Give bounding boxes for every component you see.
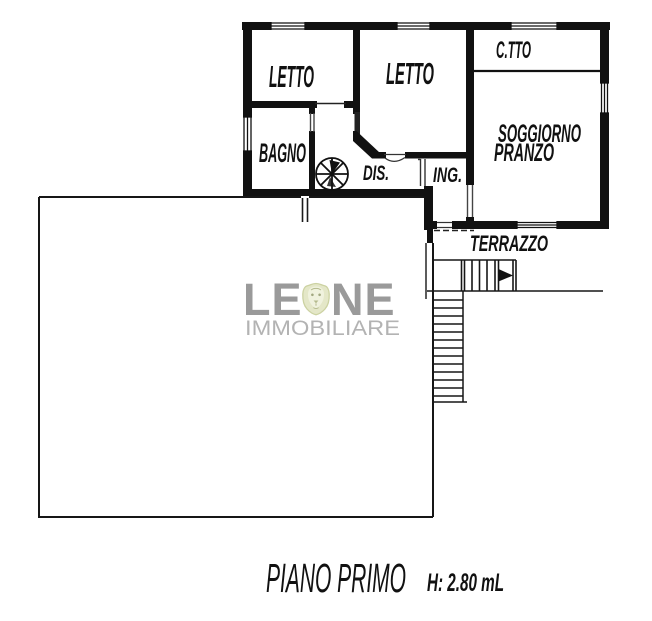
svg-text:DIS.: DIS. <box>363 162 389 185</box>
svg-text:H: 2.80 mL: H: 2.80 mL <box>427 569 504 597</box>
svg-text:C.TTO: C.TTO <box>496 37 531 64</box>
svg-text:IMMOBILIARE: IMMOBILIARE <box>245 317 400 340</box>
svg-text:ING.: ING. <box>433 164 462 187</box>
svg-text:LETTO: LETTO <box>386 56 434 91</box>
svg-text:BAGNO: BAGNO <box>259 138 306 168</box>
svg-text:TERRAZZO: TERRAZZO <box>470 231 548 256</box>
svg-text:LETTO: LETTO <box>269 59 314 94</box>
svg-text:PIANO PRIMO: PIANO PRIMO <box>266 555 406 601</box>
svg-text:PRANZO: PRANZO <box>494 139 554 167</box>
